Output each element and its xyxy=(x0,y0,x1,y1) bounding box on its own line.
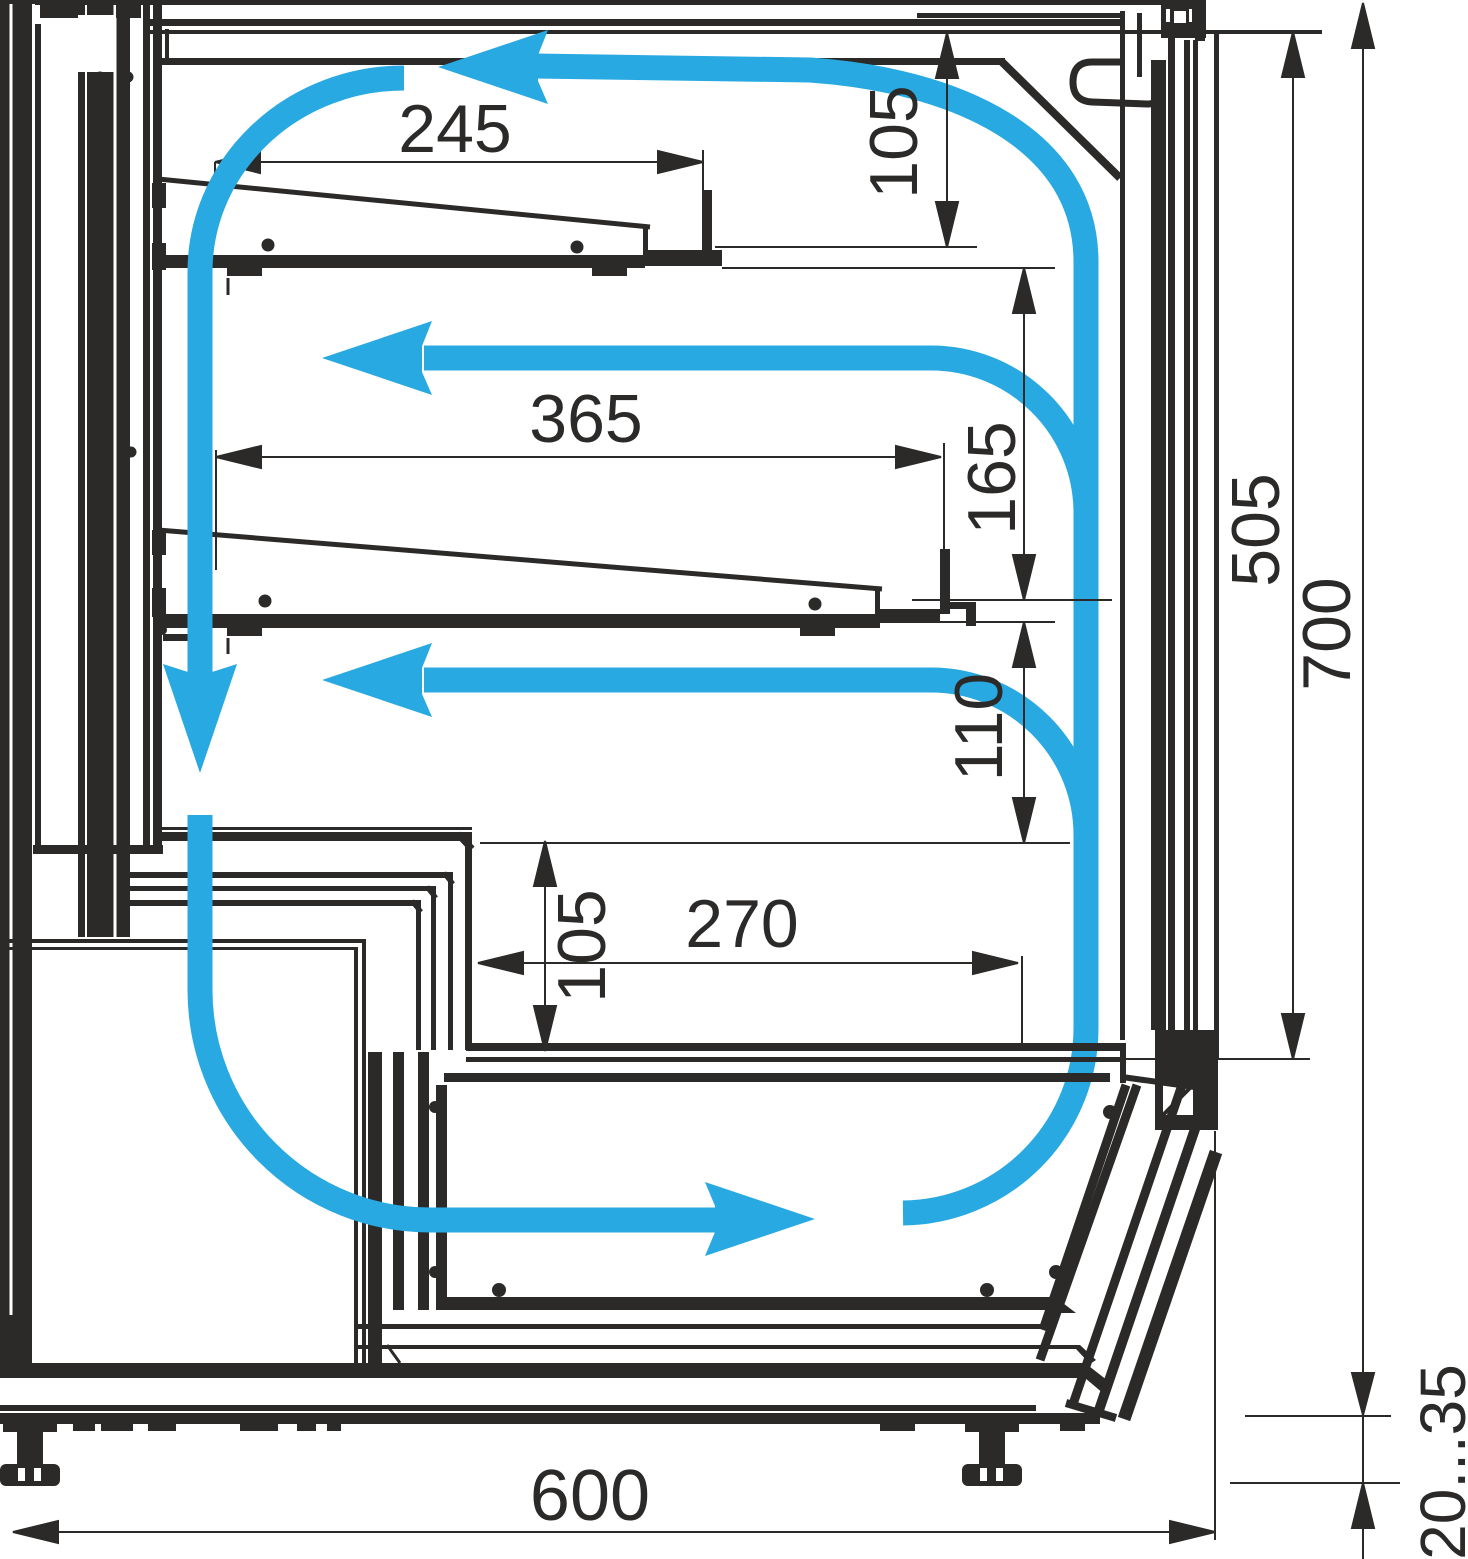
svg-text:600: 600 xyxy=(530,1456,650,1536)
svg-text:20...35: 20...35 xyxy=(1407,1364,1468,1559)
svg-text:700: 700 xyxy=(1289,577,1365,690)
svg-text:105: 105 xyxy=(856,85,932,198)
svg-text:365: 365 xyxy=(529,381,642,457)
svg-text:505: 505 xyxy=(1218,473,1294,586)
svg-text:110: 110 xyxy=(941,673,1017,781)
svg-text:270: 270 xyxy=(685,886,798,962)
svg-text:105: 105 xyxy=(544,889,620,1002)
svg-text:165: 165 xyxy=(954,421,1030,534)
svg-text:245: 245 xyxy=(398,91,511,167)
